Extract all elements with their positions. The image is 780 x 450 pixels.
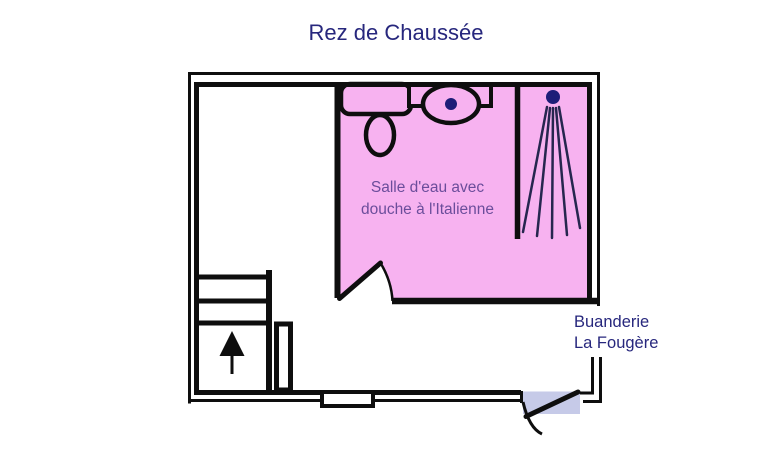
building-label-line2: La Fougère	[574, 333, 694, 354]
floor-plan-canvas	[0, 0, 780, 450]
entrance-door	[522, 357, 601, 434]
vanity-icon	[341, 84, 411, 114]
entrance-jamb-right-inner	[580, 357, 593, 393]
up-arrow-head-icon	[220, 331, 245, 356]
stair-side-closet	[277, 324, 291, 390]
toilet-icon	[366, 115, 394, 155]
washbasin-drain-dot	[445, 98, 457, 110]
floor-plan-page: Rez de Chaussée Salle d'eau avec douche …	[0, 0, 780, 450]
bathroom-label-line1: Salle d'eau avec	[337, 177, 518, 199]
window	[322, 392, 373, 406]
building-label: Buanderie La Fougère	[574, 312, 694, 354]
staircase	[197, 270, 291, 393]
shower-head-dot	[546, 90, 560, 104]
bathroom-label-line2: douche à l'Italienne	[337, 199, 518, 221]
building-label-line1: Buanderie	[574, 312, 694, 333]
page-title: Rez de Chaussée	[196, 20, 596, 46]
bathroom-label: Salle d'eau avec douche à l'Italienne	[337, 177, 518, 221]
